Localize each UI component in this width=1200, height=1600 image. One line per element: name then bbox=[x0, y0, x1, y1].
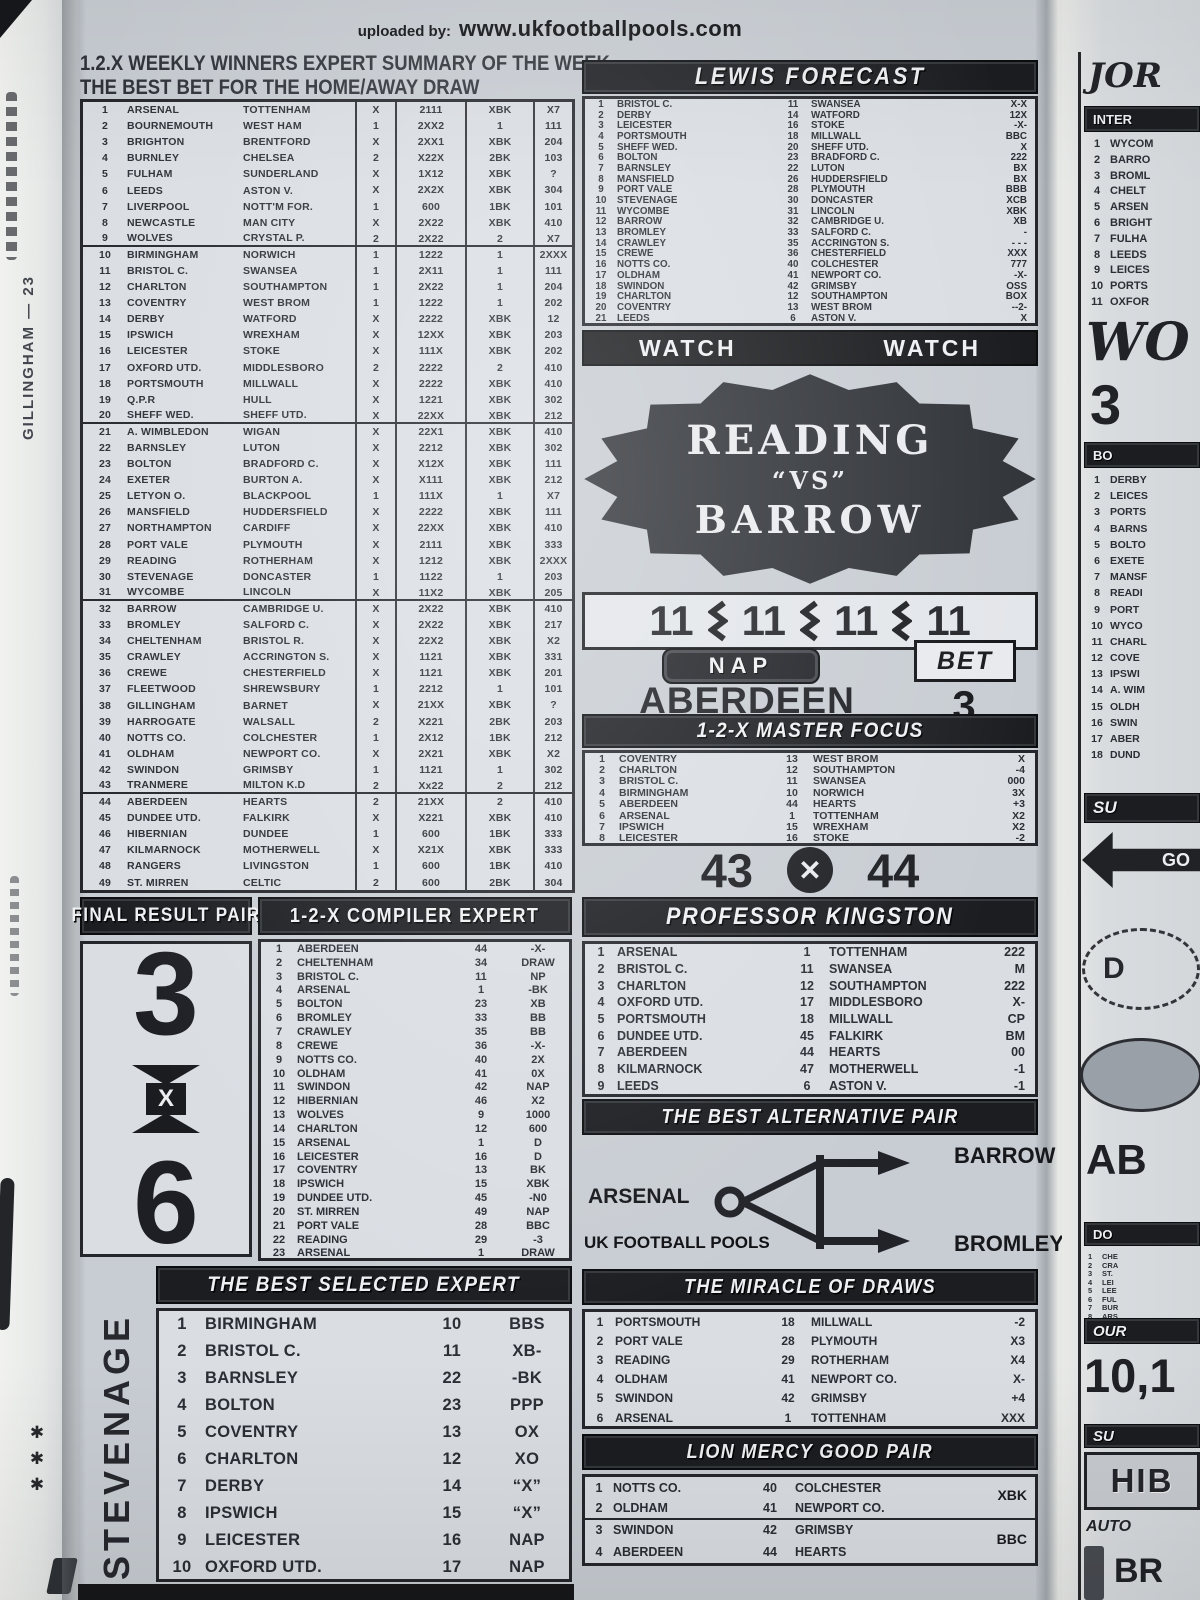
match-number: 16 bbox=[771, 832, 813, 844]
team-name: BRISTOL C. bbox=[297, 971, 455, 983]
row-number: 5 bbox=[1084, 539, 1110, 555]
forecast-code: -X- bbox=[963, 270, 1035, 281]
forecast-code: BBC bbox=[963, 131, 1035, 142]
match-number: 40 bbox=[83, 732, 127, 744]
row-number: 14 bbox=[585, 238, 617, 249]
team-name: BRISTOL C. bbox=[205, 1342, 419, 1361]
table-row: 12 HIBERNIAN 46 X2 bbox=[261, 1094, 569, 1108]
forecast-quad: 2222 bbox=[395, 360, 465, 376]
watch-banner: WATCH WATCH bbox=[582, 330, 1038, 366]
match-number: 26 bbox=[83, 506, 127, 518]
list-item: 6 EXETE bbox=[1084, 555, 1200, 571]
table-row: 16 LEICESTER 16 D bbox=[261, 1150, 569, 1164]
table-row: 27 NORTHAMPTON CARDIFF X 22XX XBK 410 bbox=[83, 520, 572, 536]
row-number: 7 bbox=[585, 821, 619, 833]
away-team: WREXHAM bbox=[243, 329, 355, 341]
tip-code: XB- bbox=[485, 1342, 569, 1361]
home-team: CRAWLEY bbox=[617, 238, 775, 249]
pick: 2 bbox=[355, 360, 395, 376]
x-emblem: X bbox=[132, 1065, 200, 1133]
away-team: MILLWALL bbox=[243, 378, 355, 390]
ink-smudge bbox=[6, 92, 17, 260]
home-team: CHARLTON bbox=[127, 281, 243, 293]
team-name: IPSWICH bbox=[205, 1504, 419, 1523]
table-row: 29 READING ROTHERHAM X 1212 XBK 2XXX bbox=[83, 553, 572, 569]
match-number: 6 bbox=[775, 313, 811, 324]
home-team: LIVERPOOL bbox=[127, 201, 243, 213]
table-row: 7 BARNSLEY 22 LUTON BX bbox=[585, 163, 1035, 174]
forecast-quad: 600 bbox=[395, 826, 465, 842]
match-number: 34 bbox=[455, 957, 507, 969]
eleven-4: 11 bbox=[926, 597, 970, 645]
match-number: 28 bbox=[775, 184, 811, 195]
away-team: WEST BROM bbox=[243, 297, 355, 309]
team-name: LEICESTER bbox=[297, 1151, 455, 1163]
home-team: PORTSMOUTH bbox=[615, 1315, 765, 1329]
table-row: 7 IPSWICH 15 WREXHAM X2 bbox=[585, 821, 1035, 832]
table-row: 12 BARROW 32 CAMBRIDGE U. XB bbox=[585, 217, 1035, 228]
table-row: 22 BARNSLEY LUTON X 2212 XBK 302 bbox=[83, 440, 572, 456]
tip-code: 222 bbox=[993, 979, 1035, 993]
table-row: 44 ABERDEEN HEARTS 2 21XX 2 410 bbox=[83, 794, 572, 810]
home-team: ST. MIRREN bbox=[127, 877, 243, 889]
home-team: CHARLTON bbox=[617, 291, 775, 302]
eleven-2: 11 bbox=[742, 597, 786, 645]
table-row: 18 SWINDON 42 GRIMSBY OSS bbox=[585, 281, 1035, 292]
pick-code: XBK bbox=[465, 343, 533, 359]
away-team: BRISTOL R. bbox=[243, 635, 355, 647]
tip-code: DRAW bbox=[507, 1247, 569, 1259]
table-row: 1 ARSENAL TOTTENHAM X 2111 XBK X7 bbox=[83, 102, 572, 118]
row-number: 3 bbox=[585, 979, 617, 993]
row-number: 14 bbox=[1084, 684, 1110, 700]
match-number: 11 bbox=[785, 962, 829, 976]
right-page-strip: JOR INTER 1 WYCOM 2 BARRO 3 BROML bbox=[1062, 0, 1200, 1600]
match-number: 14 bbox=[775, 110, 811, 121]
focus-code: -4 bbox=[971, 764, 1035, 776]
pick-code: XBK bbox=[465, 456, 533, 472]
team-fragment: ST. bbox=[1102, 1269, 1113, 1278]
table-row: 4 BURNLEY CHELSEA 2 X22X 2BK 103 bbox=[83, 150, 572, 166]
forecast-quad: X22X bbox=[395, 150, 465, 166]
list-item: 13 IPSWI bbox=[1084, 668, 1200, 684]
home-team: LEEDS bbox=[617, 1079, 785, 1093]
away-team: GRIMSBY bbox=[811, 281, 963, 292]
away-team: MIDDLESBORO bbox=[243, 362, 355, 374]
pick-code: XBK bbox=[465, 472, 533, 488]
home-team: PORT VALE bbox=[127, 539, 243, 551]
home-team: LEEDS bbox=[617, 313, 775, 324]
table-row: 9 LEEDS 6 ASTON V. -1 bbox=[585, 1078, 1035, 1095]
gray-ellipse-shape bbox=[1080, 1038, 1200, 1112]
team-fragment: A. WIM bbox=[1110, 684, 1200, 700]
tip-code: 00 bbox=[993, 1045, 1035, 1059]
strip-list-2: 1 DERBY 2 LEICES 3 PORTS 4 BARNS bbox=[1084, 474, 1200, 765]
table-row: 2 CHELTENHAM 34 DRAW bbox=[261, 956, 569, 970]
table-row: 10 BIRMINGHAM NORWICH 1 1222 1 2XXX bbox=[83, 247, 572, 263]
row-number: 9 bbox=[159, 1531, 205, 1550]
team-fragment: BARRO bbox=[1110, 154, 1200, 170]
pick-code: 1 bbox=[465, 762, 533, 778]
list-item: 2 BARRO bbox=[1084, 154, 1200, 170]
table-row: 16 NOTTS CO. 40 COLCHESTER 777 bbox=[585, 259, 1035, 270]
match-number: 36 bbox=[775, 248, 811, 259]
pick: 2 bbox=[355, 231, 395, 245]
pick: X bbox=[355, 649, 395, 665]
draw-code: -2 bbox=[979, 1315, 1035, 1329]
home-team: MANSFIELD bbox=[127, 506, 243, 518]
home-team: COVENTRY bbox=[617, 302, 775, 313]
table-row: 15 ARSENAL 1 D bbox=[261, 1136, 569, 1150]
watch-right: WATCH bbox=[883, 335, 981, 362]
row-number: 2 bbox=[261, 957, 297, 969]
table-row: 48 RANGERS LIVINGSTON 1 600 1BK 410 bbox=[83, 858, 572, 874]
home-team: CHARLTON bbox=[619, 764, 771, 776]
team-fragment: OLDH bbox=[1110, 701, 1200, 717]
table-row: 19 CHARLTON 12 SOUTHAMPTON BOX bbox=[585, 291, 1035, 302]
table-row: 5 PORTSMOUTH 18 MILLWALL CP bbox=[585, 1011, 1035, 1028]
row-number: 10 bbox=[1084, 280, 1110, 296]
match-number: 9 bbox=[455, 1109, 507, 1121]
table-row: 1 ABERDEEN 44 -X- bbox=[261, 942, 569, 956]
pick-code: 2 bbox=[465, 231, 533, 245]
result-code: X2 bbox=[533, 746, 572, 762]
away-team: ROTHERHAM bbox=[243, 555, 355, 567]
table-row: 10 STEVENAGE 30 DONCASTER XCB bbox=[585, 195, 1035, 206]
pick: X bbox=[355, 746, 395, 762]
match-number: 41 bbox=[83, 748, 127, 760]
pick: 1 bbox=[355, 199, 395, 215]
table-row: 2 BRISTOL C. 11 XB- bbox=[159, 1338, 569, 1365]
home-team: PORT VALE bbox=[615, 1334, 765, 1348]
match-number: 33 bbox=[83, 619, 127, 631]
diagram-left-team: ARSENAL bbox=[588, 1185, 690, 1209]
table-row: 11 WYCOMBE 31 LINCOLN XBK bbox=[585, 206, 1035, 217]
forecast-code: BX bbox=[963, 174, 1035, 185]
result-code: 103 bbox=[533, 150, 572, 166]
home-team: STEVENAGE bbox=[617, 195, 775, 206]
header-label: LION MERCY GOOD PAIR bbox=[687, 1441, 933, 1464]
strip-title-fragment: JOR bbox=[1088, 56, 1162, 96]
table-row: 2 BOURNEMOUTH WEST HAM 1 2XX2 1 111 bbox=[83, 118, 572, 134]
table-row: 43 TRANMERE MILTON K.D 2 Xx22 2 212 bbox=[83, 778, 572, 794]
match-number: 26 bbox=[775, 174, 811, 185]
match-number: 36 bbox=[83, 667, 127, 679]
result-code: X7 bbox=[533, 231, 572, 245]
home-team: BRIGHTON bbox=[127, 136, 243, 148]
result-code: 410 bbox=[533, 215, 572, 231]
match-number: 12 bbox=[785, 979, 829, 993]
tip-code: -1 bbox=[993, 1062, 1035, 1076]
diagram-bottom-team: BROMLEY bbox=[954, 1231, 1064, 1257]
row-number: 8 bbox=[585, 1062, 617, 1076]
table-row: 30 STEVENAGE DONCASTER 1 1122 1 203 bbox=[83, 569, 572, 585]
result-code: 111 bbox=[533, 504, 572, 520]
row-number: 9 bbox=[261, 1054, 297, 1066]
tip-code: -1 bbox=[993, 1079, 1035, 1093]
row-number: 12 bbox=[585, 216, 617, 227]
table-row: 6 LEEDS ASTON V. X 2X2X XBK 304 bbox=[83, 182, 572, 198]
home-team: EXETER bbox=[127, 474, 243, 486]
row-number: 15 bbox=[261, 1137, 297, 1149]
match-number: 12 bbox=[83, 281, 127, 293]
pick-code: 1 bbox=[465, 279, 533, 295]
forecast-code: -X- bbox=[963, 120, 1035, 131]
table-row: 13 WOLVES 9 1000 bbox=[261, 1108, 569, 1122]
table-row: 1 BRISTOL C. 11 SWANSEA X-X bbox=[585, 99, 1035, 110]
tip-code: XBK bbox=[507, 1178, 569, 1190]
pick-code: XBK bbox=[465, 665, 533, 681]
team-name: CHELTENHAM bbox=[297, 957, 455, 969]
row-number: 23 bbox=[261, 1247, 297, 1259]
result-code: X7 bbox=[533, 488, 572, 504]
match-number: 30 bbox=[775, 195, 811, 206]
team-fragment: BROML bbox=[1110, 170, 1200, 186]
tip-code: “X” bbox=[485, 1504, 569, 1523]
away-team: COLCHESTER bbox=[811, 259, 963, 270]
away-team: CHELSEA bbox=[243, 152, 355, 164]
forecast-quad: 12XX bbox=[395, 327, 465, 343]
pick-code: XBK bbox=[465, 102, 533, 118]
match-number: 18 bbox=[785, 1012, 829, 1026]
row-number: 2 bbox=[159, 1342, 205, 1361]
pick: X bbox=[355, 585, 395, 599]
ink-smudge bbox=[10, 876, 19, 996]
away-team: BRENTFORD bbox=[243, 136, 355, 148]
table-row: 4 BIRMINGHAM 10 NORWICH 3X bbox=[585, 787, 1035, 798]
row-number: 6 bbox=[1084, 555, 1110, 571]
pick: 2 bbox=[355, 794, 395, 810]
away-team: SHEFF UTD. bbox=[811, 142, 963, 153]
row-number: 5 bbox=[261, 998, 297, 1010]
pick-code: 1 bbox=[465, 569, 533, 585]
row-number: 2 bbox=[1088, 1261, 1102, 1270]
match-number: 17 bbox=[419, 1558, 485, 1577]
tip-code: -N0 bbox=[507, 1192, 569, 1204]
team-name: BARNSLEY bbox=[205, 1369, 419, 1388]
away-team: BARNET bbox=[243, 700, 355, 712]
strip-big-number-2: 10,1 bbox=[1084, 1348, 1175, 1403]
match-number: 22 bbox=[775, 163, 811, 174]
row-number: 5 bbox=[1088, 1286, 1102, 1295]
away-team: MOTHERWELL bbox=[243, 844, 355, 856]
away-team: PLYMOUTH bbox=[811, 1334, 979, 1348]
pair-code-2: BBC bbox=[997, 1531, 1027, 1547]
team-name: HIBERNIAN bbox=[297, 1095, 455, 1107]
column-rule bbox=[1078, 52, 1081, 1600]
match-number: 11 bbox=[419, 1342, 485, 1361]
pick: 2 bbox=[355, 714, 395, 730]
result-code: 101 bbox=[533, 681, 572, 697]
row-number: 20 bbox=[585, 302, 617, 313]
away-team: TOTTENHAM bbox=[243, 104, 355, 116]
pick-code: XBK bbox=[465, 376, 533, 392]
away-team: BRADFORD C. bbox=[243, 458, 355, 470]
forecast-code: 777 bbox=[963, 259, 1035, 270]
forecast-quad: 2212 bbox=[395, 440, 465, 456]
table-row: 9 WOLVES CRYSTAL P. 2 2X22 2 X7 bbox=[83, 231, 572, 247]
home-team: NOTTS CO. bbox=[617, 259, 775, 270]
match-number: 6 bbox=[785, 1079, 829, 1093]
team-fragment: READI bbox=[1110, 587, 1200, 603]
row-number: 1 bbox=[1084, 138, 1110, 154]
forecast-quad: 2X22 bbox=[395, 215, 465, 231]
match-number: 20 bbox=[775, 142, 811, 153]
match-number: 33 bbox=[455, 1012, 507, 1024]
match-number: 6 bbox=[83, 185, 127, 197]
row-number: 7 bbox=[585, 1045, 617, 1059]
result-code: X2 bbox=[533, 633, 572, 649]
pick: 2 bbox=[355, 778, 395, 792]
row-number: 7 bbox=[1088, 1303, 1102, 1312]
focus-code: +3 bbox=[971, 798, 1035, 810]
forecast-quad: 2X22 bbox=[395, 231, 465, 245]
result-code: 410 bbox=[533, 794, 572, 810]
home-team: KILMARNOCK bbox=[127, 844, 243, 856]
table-row: 14 CHARLTON 12 600 bbox=[261, 1122, 569, 1136]
table-row: 16 LEICESTER STOKE X 111X XBK 202 bbox=[83, 343, 572, 359]
pick: 1 bbox=[355, 488, 395, 504]
tip-code: M bbox=[993, 962, 1035, 976]
result-code: 202 bbox=[533, 343, 572, 359]
result-code: 333 bbox=[533, 826, 572, 842]
team-name: BOLTON bbox=[205, 1396, 419, 1415]
table-row: 2 DERBY 14 WATFORD 12X bbox=[585, 110, 1035, 121]
team-fragment: FULHA bbox=[1110, 233, 1200, 249]
away-team: GRIMSBY bbox=[795, 1523, 971, 1537]
row-number: 3 bbox=[585, 1523, 613, 1537]
home-team: PORTSMOUTH bbox=[617, 131, 775, 142]
home-team: FULHAM bbox=[127, 168, 243, 180]
forecast-quad: X221 bbox=[395, 810, 465, 826]
result-code: 410 bbox=[533, 376, 572, 392]
lion-mercy-header: LION MERCY GOOD PAIR bbox=[582, 1434, 1038, 1470]
row-number: 6 bbox=[261, 1012, 297, 1024]
forecast-code: BOX bbox=[963, 291, 1035, 302]
home-team: HIBERNIAN bbox=[127, 828, 243, 840]
result-code: 101 bbox=[533, 199, 572, 215]
pick: X bbox=[355, 134, 395, 150]
away-team: LIVINGSTON bbox=[243, 860, 355, 872]
match-number: 13 bbox=[771, 753, 813, 765]
table-row: 21 LEEDS 6 ASTON V. X bbox=[585, 313, 1035, 324]
row-number: 8 bbox=[159, 1504, 205, 1523]
away-team: SHEFF UTD. bbox=[243, 409, 355, 421]
team-fragment: DUND bbox=[1110, 749, 1200, 765]
away-team: SOUTHAMPTON bbox=[829, 979, 993, 993]
home-team: DERBY bbox=[617, 110, 775, 121]
tip-code: XO bbox=[485, 1450, 569, 1469]
tip-code: -X- bbox=[507, 943, 569, 955]
match-number: 49 bbox=[455, 1206, 507, 1218]
away-team: NEWPORT CO. bbox=[811, 270, 963, 281]
forecast-quad: 2212 bbox=[395, 681, 465, 697]
table-row: 33 BROMLEY SALFORD C. X 2X22 XBK 217 bbox=[83, 617, 572, 633]
away-team: NEWPORT CO. bbox=[795, 1501, 971, 1515]
home-team: CREWE bbox=[617, 248, 775, 259]
table-row: 8 IPSWICH 15 “X” bbox=[159, 1500, 569, 1527]
pick-code: XBK bbox=[465, 327, 533, 343]
away-team: CARDIFF bbox=[243, 522, 355, 534]
team-fragment: BARNS bbox=[1110, 523, 1200, 539]
master-focus-table: 1 COVENTRY 13 WEST BROM X 2 CHARLTON 12 … bbox=[582, 750, 1038, 846]
tip-code: -3 bbox=[507, 1234, 569, 1246]
header-label: PROFESSOR KINGSTON bbox=[666, 903, 954, 931]
tip-code: NAP bbox=[485, 1531, 569, 1550]
forecast-code: XBK bbox=[963, 206, 1035, 217]
row-number: 12 bbox=[1084, 652, 1110, 668]
row-number: 2 bbox=[585, 110, 617, 121]
match-number: 15 bbox=[455, 1178, 507, 1190]
away-team: WEST BROM bbox=[811, 302, 963, 313]
focus-code: X2 bbox=[971, 821, 1035, 833]
result-code: 2XXX bbox=[533, 247, 572, 263]
team-fragment: OXFOR bbox=[1110, 296, 1200, 312]
forecast-quad: 1121 bbox=[395, 762, 465, 778]
result-code: ? bbox=[533, 697, 572, 713]
table-row: 1 ARSENAL 1 TOTTENHAM 222 bbox=[585, 944, 1035, 961]
team-fragment: WYCO bbox=[1110, 620, 1200, 636]
list-item: 5 BOLTO bbox=[1084, 539, 1200, 555]
match-number: 37 bbox=[83, 683, 127, 695]
table-row: 3 BRIGHTON BRENTFORD X 2XX1 XBK 204 bbox=[83, 134, 572, 150]
row-number: 17 bbox=[585, 270, 617, 281]
table-row: 6 BOLTON 23 BRADFORD C. 222 bbox=[585, 152, 1035, 163]
home-team: PORT VALE bbox=[617, 184, 775, 195]
match-number: 36 bbox=[455, 1040, 507, 1052]
pick: X bbox=[355, 617, 395, 633]
match-number: 21 bbox=[83, 426, 127, 438]
title-line-2: THE BEST BET FOR THE HOME/AWAY DRAW bbox=[80, 76, 479, 100]
forecast-code: OSS bbox=[963, 281, 1035, 292]
match-number: 32 bbox=[83, 603, 127, 615]
pick-code: XBK bbox=[465, 810, 533, 826]
table-row: 7 CRAWLEY 35 BB bbox=[261, 1025, 569, 1039]
away-team: STOKE bbox=[243, 345, 355, 357]
home-team: BIRMINGHAM bbox=[127, 249, 243, 261]
alternative-pair-header: THE BEST ALTERNATIVE PAIR bbox=[582, 1099, 1038, 1135]
table-row: 9 NOTTS CO. 40 2X bbox=[261, 1053, 569, 1067]
home-team: RANGERS bbox=[127, 860, 243, 872]
match-number: 23 bbox=[775, 152, 811, 163]
team-fragment: MANSF bbox=[1110, 571, 1200, 587]
match-number: 16 bbox=[455, 1151, 507, 1163]
lion-mercy-table: XBK BBC 1 NOTTS CO. 40 COLCHESTER 2 OLDH… bbox=[582, 1474, 1038, 1566]
forecast-quad: 2222 bbox=[395, 504, 465, 520]
pick-code: XBK bbox=[465, 746, 533, 762]
table-row: 5 BOLTON 23 XB bbox=[261, 997, 569, 1011]
tip-code: BBS bbox=[485, 1315, 569, 1334]
result-code: 410 bbox=[533, 520, 572, 536]
home-team: NEWCASTLE bbox=[127, 217, 243, 229]
diagram-top-team: BARROW bbox=[954, 1143, 1055, 1169]
pick: X bbox=[355, 343, 395, 359]
match-number: 14 bbox=[419, 1477, 485, 1496]
table-row: 17 OXFORD UTD. MIDDLESBORO 2 2222 2 410 bbox=[83, 360, 572, 376]
result-code: 2XXX bbox=[533, 553, 572, 569]
row-number: 1 bbox=[585, 753, 619, 765]
forecast-quad: 111X bbox=[395, 343, 465, 359]
tip-code: NAP bbox=[485, 1558, 569, 1577]
table-row: 35 CRAWLEY ACCRINGTON S. X 1121 XBK 331 bbox=[83, 649, 572, 665]
row-number: 6 bbox=[159, 1450, 205, 1469]
match-number: 17 bbox=[785, 995, 829, 1009]
table-row: 6 BROMLEY 33 BB bbox=[261, 1011, 569, 1025]
table-row: 26 MANSFIELD HUDDERSFIELD X 2222 XBK 111 bbox=[83, 504, 572, 520]
row-number: 6 bbox=[585, 810, 619, 822]
away-team: ACCRINGTON S. bbox=[243, 651, 355, 663]
table-row: 32 BARROW CAMBRIDGE U. X 2X22 XBK 410 bbox=[83, 601, 572, 617]
